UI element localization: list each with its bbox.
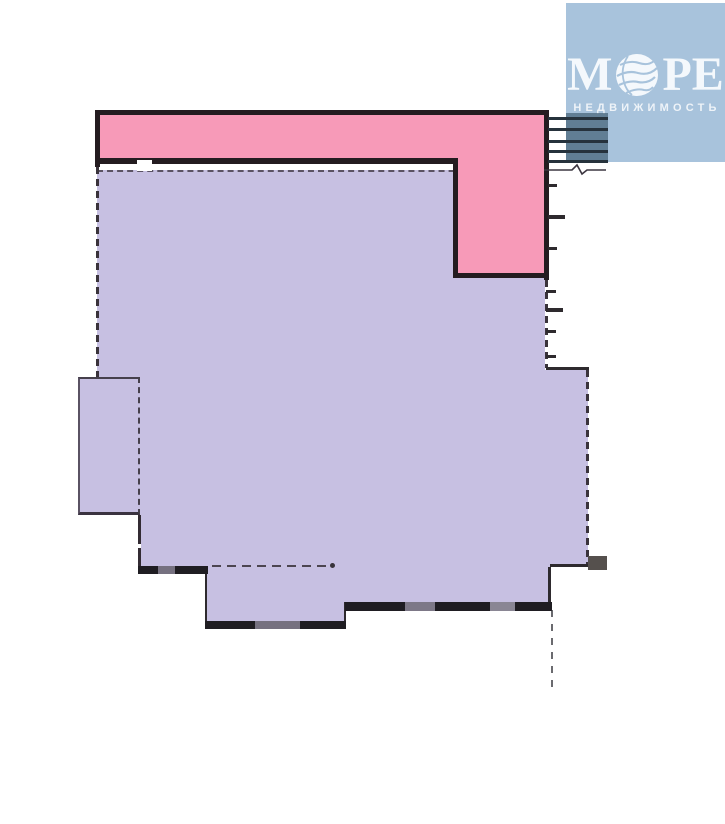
brand-letter-m: М [567,51,612,99]
wall-right-dashed-lower [586,370,589,566]
break-line [544,163,608,177]
dashed-extension-line [551,610,553,688]
floor-plan-page: М РЕ НЕДВИЖИМОСТЬ [0,0,725,824]
wall-tick [546,330,556,333]
stair-step-line [548,117,608,120]
wall-tick [546,308,563,312]
wall-top [95,110,549,115]
wall-left-dashed [96,167,99,377]
brand-letters-re: РЕ [662,51,723,99]
globe-sphere-icon [614,52,660,98]
wall-tick [548,184,557,187]
dashed-boundary-line [212,565,332,567]
room-lower-strip [207,567,550,603]
room-right-wing [545,370,588,567]
wall-step-bottom-right [550,564,589,567]
wall-tick [546,290,556,293]
stairs-shade [566,113,608,163]
wall-tick [548,247,557,250]
agency-logo-brand: М РЕ [566,47,725,103]
wall-leg-bottom [453,273,549,278]
boundary-dot [330,563,335,568]
stair-step-line [548,150,608,153]
room-main-lower [140,515,545,570]
terrace-wall-left [205,571,207,624]
window-band-bottom-left [138,566,208,574]
window-band-terrace [205,621,346,629]
wall-stub [588,556,607,570]
wall-leg-left [453,158,458,278]
balcony [78,377,140,515]
room-pink-bar [97,113,545,163]
stairs [548,113,608,164]
room-pink-leg [455,158,545,278]
wall-notch [138,544,141,548]
stair-step-line [548,140,608,143]
wall-left-lower [138,515,141,568]
wall-tick [546,355,556,358]
wall-lower-right [548,567,551,603]
wall-step-right [546,367,589,370]
wall-tick [548,215,565,219]
door-opening [137,160,152,171]
window-band-bottom-right [345,602,552,611]
stair-step-line [548,128,608,131]
